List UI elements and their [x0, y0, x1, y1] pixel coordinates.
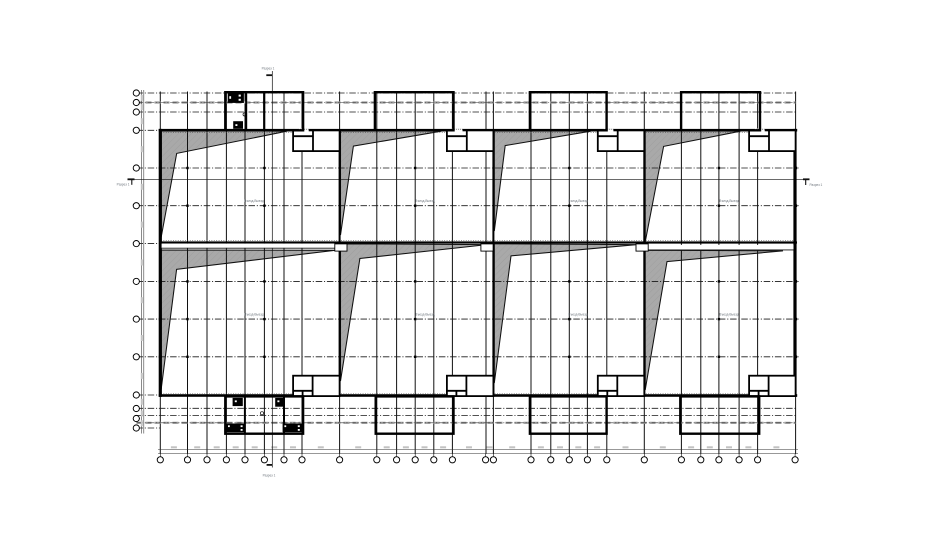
svg-text:Въезд-Выезд: Въезд-Выезд — [415, 312, 435, 316]
svg-text:Разрез 1: Разрез 1 — [810, 183, 823, 187]
svg-text:Въезд-Выезд: Въезд-Выезд — [244, 199, 264, 203]
svg-text:Въезд-Выезд: Въезд-Выезд — [244, 312, 264, 316]
svg-text:Въезд-Выезд: Въезд-Выезд — [568, 312, 588, 316]
svg-text:Въезд-Выезд: Въезд-Выезд — [568, 199, 588, 203]
svg-text:Разрез 1: Разрез 1 — [263, 474, 276, 478]
svg-text:Разрез 1: Разрез 1 — [117, 183, 130, 187]
svg-text:Въезд-Выезд: Въезд-Выезд — [415, 199, 435, 203]
svg-text:Разрез 1: Разрез 1 — [262, 67, 275, 71]
svg-text:Въезд-Выезд: Въезд-Выезд — [719, 312, 739, 316]
svg-text:Въезд-Выезд: Въезд-Выезд — [719, 199, 739, 203]
